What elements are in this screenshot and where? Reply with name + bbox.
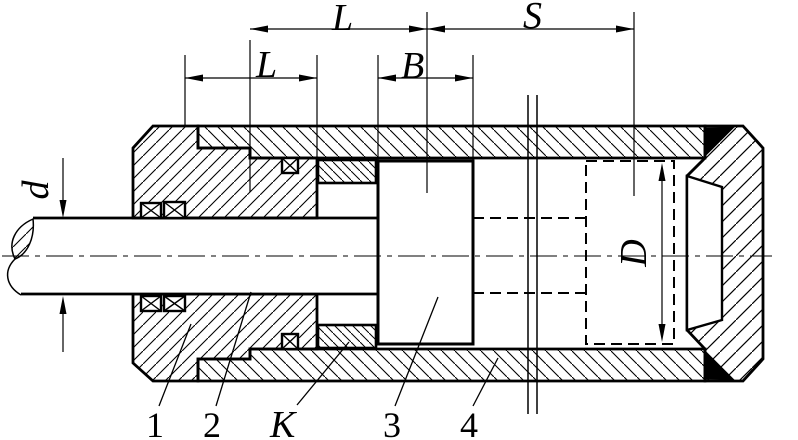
rod-seal-icon xyxy=(164,202,185,218)
right-end-cap xyxy=(687,126,763,381)
rod-seal-icon xyxy=(141,203,161,218)
part-label-piston: 3 xyxy=(383,405,401,440)
rod-seal-icon xyxy=(141,296,161,311)
gland-oring-icon xyxy=(282,334,298,349)
dim-label-S: S xyxy=(523,0,542,37)
piston xyxy=(378,161,473,344)
dim-label-L-lower: L xyxy=(255,44,277,86)
spacer-ring-top xyxy=(318,160,376,183)
dim-label-d: d xyxy=(15,180,57,200)
dim-label-D: D xyxy=(613,239,655,267)
part-label-end-cap: 1 xyxy=(146,405,164,440)
cylinder-section-drawing: L S L B d D 1 2 K 3 4 xyxy=(0,0,798,440)
rod-break-curve xyxy=(8,259,21,295)
barrel-top-wall xyxy=(198,126,705,158)
drawing-canvas: L S L B d D 1 2 K 3 4 xyxy=(0,0,798,440)
dim-label-B: B xyxy=(401,45,424,87)
part-label-spacer-ring: K xyxy=(269,404,297,440)
part-label-barrel: 4 xyxy=(460,405,478,440)
gland-oring-icon xyxy=(282,158,298,173)
barrel-bottom-wall xyxy=(198,349,705,381)
right-cap-conical-recess xyxy=(687,176,722,330)
rod-seal-icon xyxy=(164,296,185,311)
dim-label-L-upper: L xyxy=(331,0,353,39)
part-label-piston-rod: 2 xyxy=(203,405,221,440)
